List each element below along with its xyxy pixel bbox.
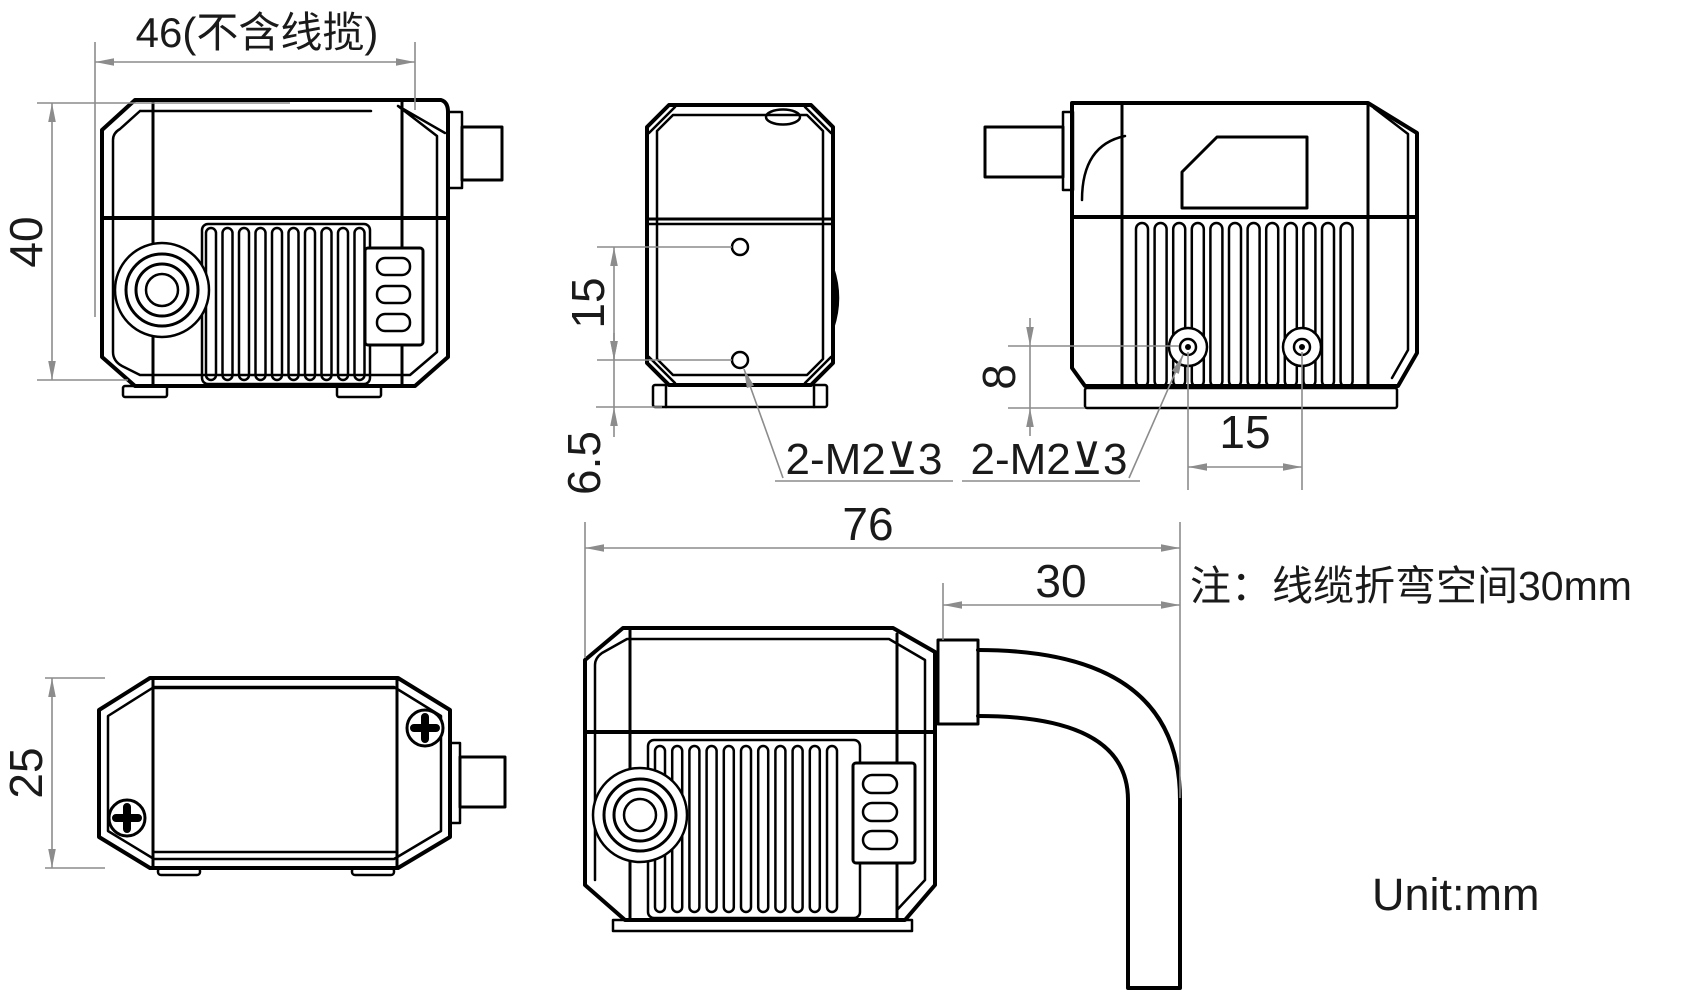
rear-housing-outline <box>1072 103 1417 386</box>
rear-view <box>985 103 1417 408</box>
dim-overall-length-label: 76 <box>842 498 893 550</box>
lens-front <box>115 243 209 337</box>
phillips-screw-bottom-left <box>109 800 145 836</box>
front-view <box>102 100 502 397</box>
cable-curve <box>978 650 1180 988</box>
rear-thread-callout-label: 2-M2⊻3 <box>971 435 1128 484</box>
dim-front-height-label: 40 <box>0 216 52 267</box>
cable-body <box>985 127 1063 177</box>
dim-top-height: 25 <box>0 678 105 868</box>
side-housing-inner <box>657 115 823 375</box>
dim-side-hole-offset-label: 6.5 <box>558 431 610 495</box>
rear-screw-holes <box>1169 328 1321 366</box>
side-housing-outline <box>647 105 833 385</box>
cable-body <box>462 127 502 180</box>
side-view <box>647 105 838 407</box>
dim-side-hole-spacing-label: 15 <box>562 277 614 328</box>
led-indicators-cable-view <box>853 763 915 863</box>
dim-front-height: 40 <box>0 103 290 380</box>
dim-cable-bend: 30 <box>943 555 1180 640</box>
top-housing-inner <box>108 687 441 859</box>
side-corner-bumpers <box>649 107 831 383</box>
side-mounting-holes <box>732 239 748 368</box>
cable-stub-rear <box>985 112 1073 190</box>
side-top-hole <box>766 110 800 125</box>
top-foot-right <box>352 868 394 875</box>
dim-top-height-label: 25 <box>0 747 52 798</box>
top-foot-left <box>158 868 200 875</box>
side-thread-callout-label: 2-M2⊻3 <box>786 435 943 484</box>
rear-housing-inner <box>1082 108 1408 378</box>
phillips-screw-top-right <box>407 710 443 746</box>
dim-front-width-label: 46(不含线揽) <box>136 9 379 56</box>
dim-rear-hole-height-label: 8 <box>973 364 1025 390</box>
dim-rear-hole-spacing-label: 15 <box>1219 406 1270 458</box>
cable-body <box>460 757 505 807</box>
cable-stub-front <box>448 112 502 188</box>
top-view <box>99 678 505 875</box>
dimension-drawing: 46(不含线揽) 40 15 <box>0 0 1682 995</box>
lens-cable-view <box>593 768 687 862</box>
heatsink-fins-rear <box>1136 223 1353 387</box>
led-indicators-front <box>365 248 423 345</box>
unit-label: Unit:mm <box>1372 869 1540 920</box>
dim-overall-length: 76 <box>585 498 1180 798</box>
dim-cable-bend-label: 30 <box>1035 555 1086 607</box>
connector-port <box>1182 137 1307 208</box>
cable-flange <box>448 112 462 188</box>
cable-bend <box>938 640 1180 988</box>
heatsink-fins-front <box>202 224 370 384</box>
side-foot <box>653 385 827 407</box>
cable-boot <box>938 640 978 724</box>
rear-foot <box>1085 388 1397 408</box>
cable-stub-top <box>450 743 505 823</box>
note-text: 注：线缆折弯空间30mm <box>1190 563 1632 609</box>
dimension-drawing-page: 46(不含线揽) 40 15 <box>0 0 1682 995</box>
side-cable-view <box>585 628 1180 988</box>
